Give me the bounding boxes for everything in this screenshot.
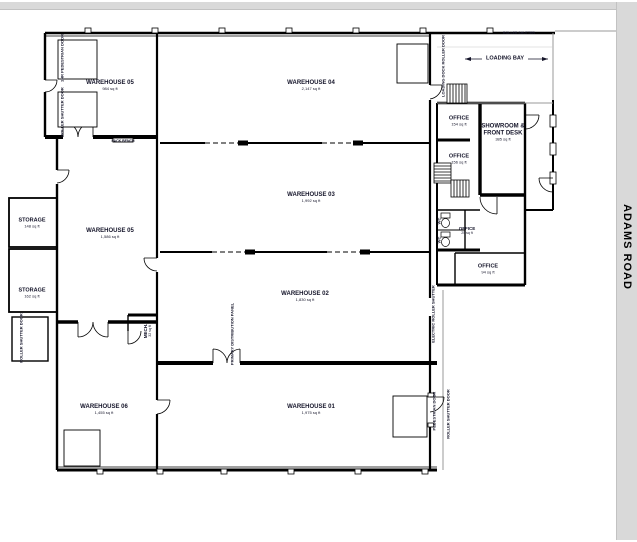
room-name: WAREHOUSE 06 [80,404,128,410]
floorplan-page: ADAMS ROAD [0,0,637,542]
room-name: WAREHOUSE 04 [287,80,335,86]
room-label-warehouse-05: WAREHOUSE 051,586 sq ft [86,228,134,240]
primary-panel-label: PRIMARY DISTRIBUTION PANEL [230,303,235,365]
roller-door-sw-label: ROLLER SHUTTER DOOR [19,313,24,363]
room-label-warehouse-04: WAREHOUSE 042,147 sq ft [287,80,335,92]
electric-roller-right-label: ELECTRIC ROLLER SHUTTER [431,285,436,343]
room-label-office-1: OFFICE154 sq ft [449,115,469,126]
room-name: SHOWROOM & FRONT DESK [481,123,524,136]
pedestrian-door-left-label: 1HR PEDESTRIAN DOOR [60,34,65,82]
room-area: 94 sq ft [478,270,498,275]
room-area: 1,992 sq ft [287,199,335,204]
room-name: WAREHOUSE 05 [86,80,134,86]
wc-1-label: WC [437,218,442,225]
loading-bay-label: LOADING BAY [486,56,524,63]
pedestrian-door-se-label: PEDESTRIAN DOOR [432,392,437,431]
room-name: WAREHOUSE 01 [287,404,335,410]
room-label-office-3: OFFICE25 sq ft [459,226,476,236]
room-label-office-2: OFFICE156 sq ft [449,153,469,164]
room-area: 156 sq ft [449,160,469,165]
room-name: MECH. [143,324,148,339]
roller-shutter-top-label: ROLLER SHUTTER [503,31,535,35]
room-area: 385 sq ft [478,138,528,143]
roller-door-left-label: ROLLER SHUTTER DOOR [60,87,65,137]
room-label-storage-lower: STORAGE162 sq ft [18,287,45,298]
room-label-office-4: OFFICE94 sq ft [478,263,498,274]
loading-dock-door-label: LOADING DOCK ROLLER DOOR [441,35,446,97]
pack-bench-label: PACK BENCH [111,139,134,143]
roller-door-se-label: ROLLER SHUTTER DOOR [446,389,451,439]
room-area: 1,975 sq ft [287,411,335,416]
room-area: 1,586 sq ft [86,235,134,240]
room-area: 32 sq ft [149,324,153,339]
room-label-warehouse-06: WAREHOUSE 061,455 sq ft [80,404,128,416]
room-area: 154 sq ft [449,122,469,127]
room-name: WAREHOUSE 02 [281,291,329,297]
room-name: WAREHOUSE 05 [86,228,134,234]
room-label-showroom: SHOWROOM & FRONT DESK385 sq ft [478,123,528,142]
room-name: OFFICE [459,226,476,231]
room-area: 148 sq ft [18,224,45,229]
room-area: 984 sq ft [86,87,134,92]
room-area: 162 sq ft [18,294,45,299]
room-area: 2,147 sq ft [287,87,335,92]
room-name: WAREHOUSE 03 [287,192,335,198]
wc-2-label: WC [437,237,442,244]
room-label-warehouse-02: WAREHOUSE 021,830 sq ft [281,291,329,303]
room-area: 25 sq ft [459,232,476,236]
room-label-warehouse-05-upper: WAREHOUSE 05984 sq ft [86,80,134,92]
room-area: 1,455 sq ft [80,411,128,416]
room-label-storage-upper: STORAGE148 sq ft [18,217,45,228]
room-label-mech: MECH.32 sq ft [143,324,153,339]
room-label-warehouse-01: WAREHOUSE 011,975 sq ft [287,404,335,416]
room-label-warehouse-03: WAREHOUSE 031,992 sq ft [287,192,335,204]
room-area: 1,830 sq ft [281,298,329,303]
